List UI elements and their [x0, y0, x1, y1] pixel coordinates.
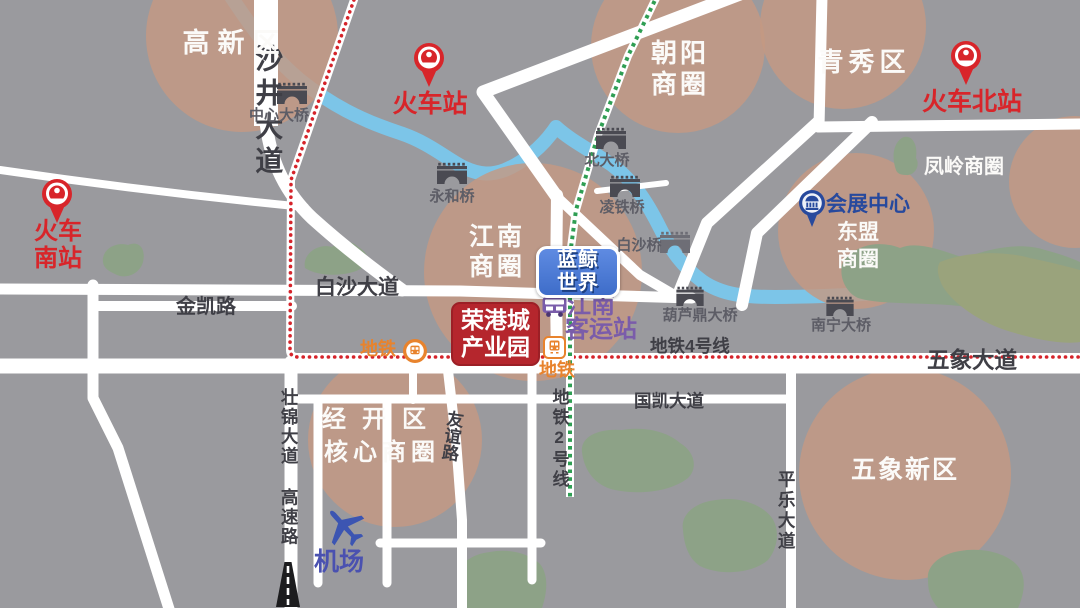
bridge-label-beida-qiao: 北大桥 — [581, 152, 633, 169]
district-label-chaoyang-line2: 商圈 — [640, 69, 720, 100]
district-label-dongmeng: 东盟 商圈 — [826, 220, 890, 273]
bridge-label-yonghe-qiao: 永和桥 — [426, 188, 478, 205]
metro-line4-label: 地铁4号线 — [650, 336, 730, 356]
metro-entrance-icon — [402, 338, 428, 364]
ronggang-badge-line2: 产业园 — [461, 334, 530, 361]
railway-station-icon — [949, 40, 983, 86]
district-label-qingxiuqu: 青秀区 — [816, 48, 912, 78]
railway-station-icon — [412, 42, 446, 88]
district-label-jiangnan: 江南 商圈 — [463, 222, 531, 282]
bridge-label-nanning-daqiao: 南宁大桥 — [803, 317, 879, 334]
station-label-huoche-nanzhan-line2: 南站 — [30, 245, 86, 272]
district-label-wuxiang-xinqu: 五象新区 — [840, 456, 970, 485]
metro-line2-label: 地铁2号线 — [549, 388, 569, 490]
bus-station-icon — [542, 295, 567, 317]
metro-entrance-label: 地铁 — [539, 360, 575, 381]
bridge-icon — [437, 162, 467, 184]
district-label-gaoxinqu: 高新区 — [170, 28, 300, 59]
bridge-label-baisha-qiao: 白沙桥 — [613, 237, 665, 254]
bridge-label-huluding-daqiao: 葫芦鼎大桥 — [660, 307, 740, 324]
bridge-icon — [826, 296, 854, 316]
metro-entrance-icon — [543, 336, 566, 359]
station-label-huoche-nanzhan-line1: 火车 — [30, 218, 86, 245]
station-label-jiangnan-keyunzhan-line2: 客运站 — [565, 316, 637, 344]
airport-label: 机场 — [314, 548, 364, 577]
bridge-icon — [596, 127, 626, 149]
station-label-huoche-beizhan: 火车北站 — [916, 88, 1028, 117]
station-label-huizhan-zhongxin: 会展中心 — [826, 193, 910, 217]
district-label-jingkaiqu-line1: 经开区 — [318, 406, 446, 434]
road-label-wuxiang-dadao: 五象大道 — [927, 348, 1017, 374]
road-label-zhuangjin-dadao: 壮锦大道 高速路 — [279, 388, 299, 547]
road-label-jinkai-lu: 金凯路 — [176, 296, 236, 319]
district-label-jingkaiqu-line2: 核心商圈 — [318, 439, 446, 467]
road-label-guokai-dadao: 国凯大道 — [634, 391, 704, 411]
city-map: 沙井大道 高新区 中心大桥 火车站 朝阳 商圈 青秀区 火车北站 凤岭商圈 永和… — [0, 0, 1080, 608]
lanjing-badge-line2: 世界 — [557, 272, 599, 295]
station-label-huochezhan: 火车站 — [382, 90, 478, 119]
bridge-label-zhongxin-daqiao: 中心大桥 — [246, 107, 312, 124]
district-label-chaoyang: 朝阳 商圈 — [640, 38, 720, 100]
district-label-chaoyang-line1: 朝阳 — [640, 38, 720, 69]
district-label-jiangnan-line2: 商圈 — [463, 252, 531, 282]
lanjing-shijie-badge: 蓝鲸 世界 — [536, 246, 620, 298]
district-label-fengling: 凤岭商圈 — [914, 156, 1014, 179]
ronggangcheng-industrial-park-badge: 荣港城 产业园 — [451, 302, 540, 366]
road-label-baisha-dadao: 白沙大道 — [315, 276, 399, 300]
ronggang-badge-line1: 荣港城 — [461, 307, 530, 334]
district-label-jiangnan-line1: 江南 — [463, 222, 531, 252]
district-label-dongmeng-line2: 商圈 — [826, 247, 890, 274]
metro-entrance-label: 地铁 — [360, 339, 396, 360]
district-label-dongmeng-line1: 东盟 — [826, 220, 890, 247]
bridge-icon — [610, 175, 640, 197]
bridge-icon — [676, 286, 704, 306]
station-label-huoche-nanzhan: 火车 南站 — [30, 218, 86, 272]
convention-center-icon — [797, 189, 827, 229]
bridge-label-lingtie-qiao: 凌铁桥 — [596, 199, 648, 216]
road-label-pingle-dadao: 平乐大道 — [776, 470, 796, 552]
lanjing-badge-line1: 蓝鲸 — [557, 249, 599, 272]
highway-icon — [273, 562, 303, 607]
